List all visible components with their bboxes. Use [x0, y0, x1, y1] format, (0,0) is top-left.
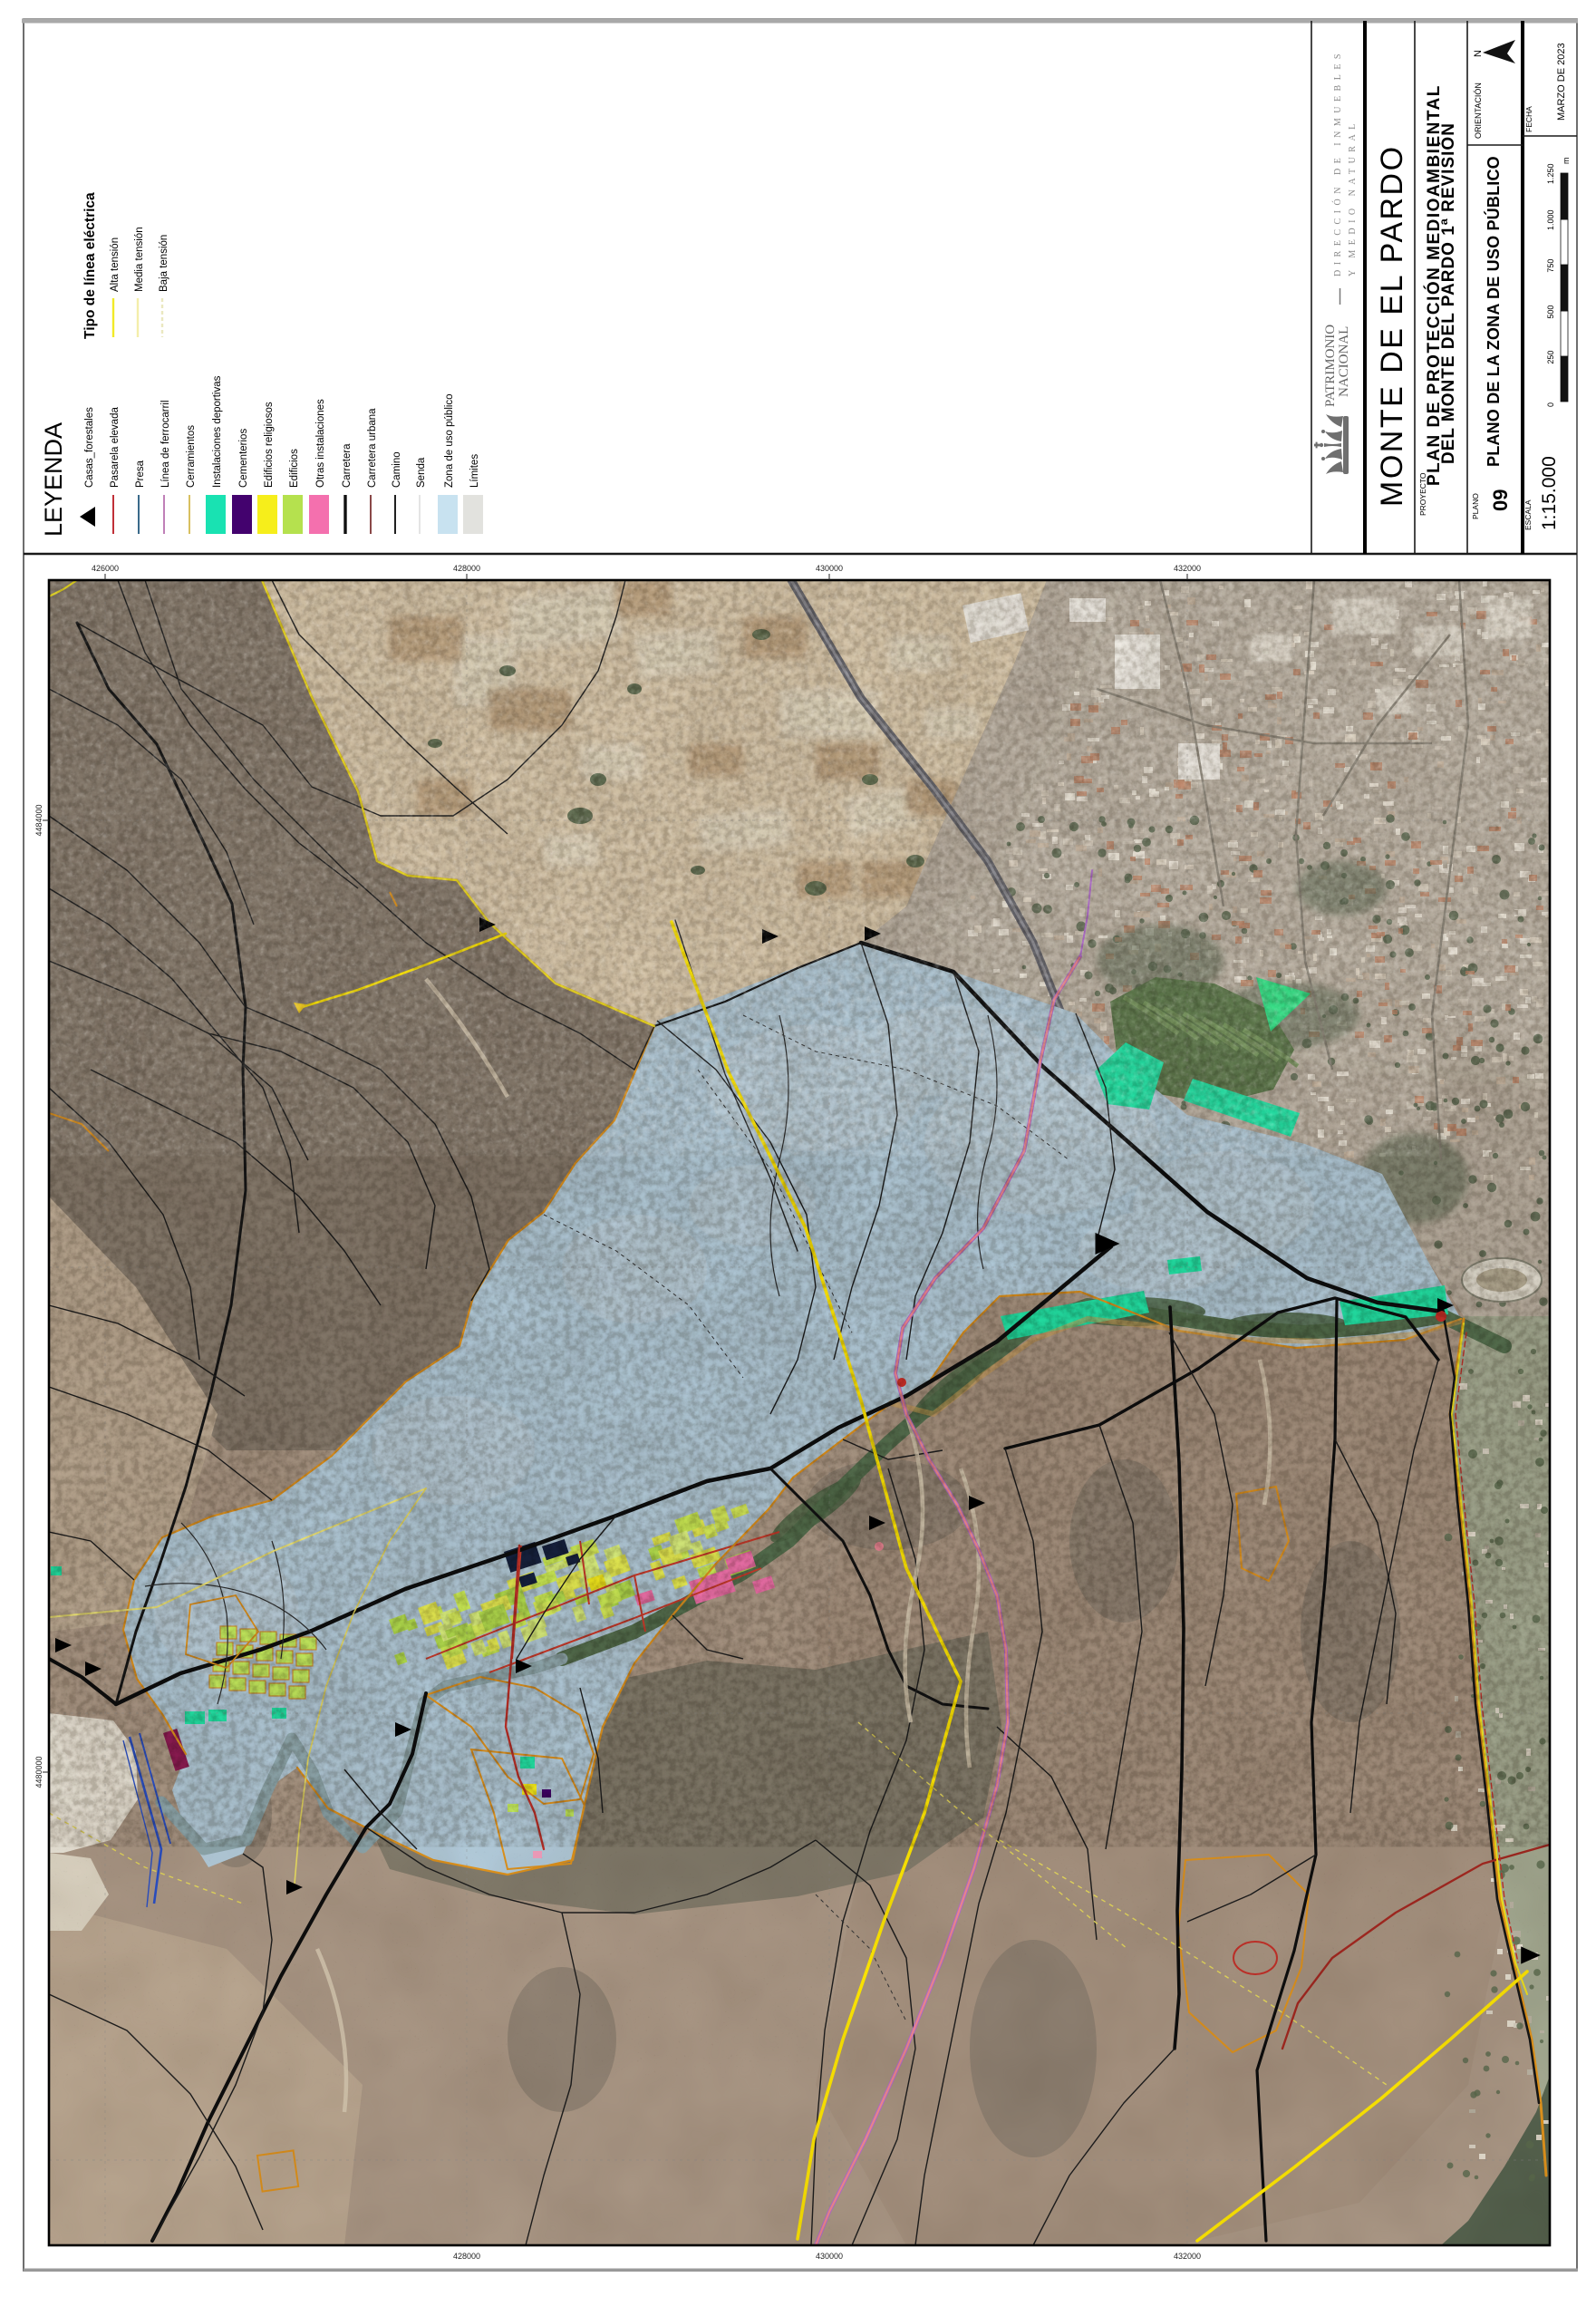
svg-text:DEL MONTE DEL PARDO 1ª REVISIÓ: DEL MONTE DEL PARDO 1ª REVISIÓN	[1438, 122, 1458, 464]
svg-text:N: N	[1473, 50, 1484, 57]
svg-text:0: 0	[1546, 402, 1555, 407]
svg-text:Camino: Camino	[392, 451, 402, 488]
svg-text:Carretera urbana: Carretera urbana	[367, 408, 378, 488]
svg-text:Cerramientos: Cerramientos	[186, 425, 197, 488]
svg-text:Límites: Límites	[469, 454, 480, 488]
svg-text:Tipo de línea eléctrica: Tipo de línea eléctrica	[82, 192, 98, 339]
svg-text:Edificios: Edificios	[289, 449, 300, 488]
svg-text:1:15.000: 1:15.000	[1539, 456, 1560, 530]
svg-text:Otras instalaciones: Otras instalaciones	[315, 399, 326, 488]
svg-text:FECHA: FECHA	[1524, 106, 1533, 132]
svg-text:ORIENTACIÓN: ORIENTACIÓN	[1474, 82, 1483, 139]
svg-text:PLANO DE LA ZONA DE USO PÚBLIC: PLANO DE LA ZONA DE USO PÚBLICO	[1484, 156, 1503, 467]
svg-text:LEYENDA: LEYENDA	[40, 422, 67, 537]
svg-text:750: 750	[1546, 259, 1555, 273]
svg-text:1.250: 1.250	[1546, 163, 1555, 184]
svg-text:4480000: 4480000	[34, 1756, 44, 1788]
svg-text:1.000: 1.000	[1546, 209, 1555, 230]
svg-text:Baja tensión: Baja tensión	[159, 235, 169, 292]
svg-text:ESCALA: ESCALA	[1523, 499, 1533, 530]
svg-text:430000: 430000	[816, 2252, 843, 2261]
svg-text:432000: 432000	[1174, 564, 1201, 573]
svg-text:Alta tensión: Alta tensión	[110, 237, 121, 292]
svg-text:Instalaciones deportivas: Instalaciones deportivas	[212, 375, 223, 488]
svg-text:DIRECCIÓN DE INMUEBLES: DIRECCIÓN DE INMUEBLES	[1332, 49, 1343, 276]
svg-text:MARZO DE 2023: MARZO DE 2023	[1556, 43, 1567, 121]
svg-text:Línea de ferrocarril: Línea de ferrocarril	[160, 400, 171, 488]
svg-text:Senda: Senda	[416, 457, 427, 488]
svg-text:430000: 430000	[816, 564, 843, 573]
svg-text:Zona de uso público: Zona de uso público	[444, 393, 455, 488]
svg-text:426000: 426000	[92, 564, 119, 573]
svg-text:428000: 428000	[453, 2252, 480, 2261]
svg-text:4484000: 4484000	[34, 804, 44, 836]
svg-text:Media tensión: Media tensión	[134, 227, 145, 292]
svg-text:432000: 432000	[1174, 2252, 1201, 2261]
svg-text:428000: 428000	[453, 564, 480, 573]
svg-text:500: 500	[1546, 305, 1555, 319]
svg-text:Cementerios: Cementerios	[238, 429, 249, 488]
svg-text:Carretera: Carretera	[342, 443, 353, 488]
svg-text:m: m	[1562, 158, 1571, 165]
svg-text:250: 250	[1546, 351, 1555, 364]
svg-text:Pasarela elevada: Pasarela elevada	[110, 407, 121, 488]
svg-text:MONTE DE EL PARDO: MONTE DE EL PARDO	[1375, 144, 1409, 507]
svg-text:Casas_forestales: Casas_forestales	[84, 407, 95, 488]
svg-text:09: 09	[1489, 489, 1512, 511]
svg-text:Presa: Presa	[135, 460, 146, 488]
svg-text:PATRIMONIO: PATRIMONIO	[1323, 325, 1338, 407]
svg-text:Y MEDIO NATURAL: Y MEDIO NATURAL	[1348, 119, 1358, 276]
svg-text:PLANO: PLANO	[1471, 493, 1480, 519]
svg-text:Edificios religiosos: Edificios religiosos	[264, 402, 275, 488]
svg-text:NACIONAL: NACIONAL	[1337, 326, 1351, 397]
